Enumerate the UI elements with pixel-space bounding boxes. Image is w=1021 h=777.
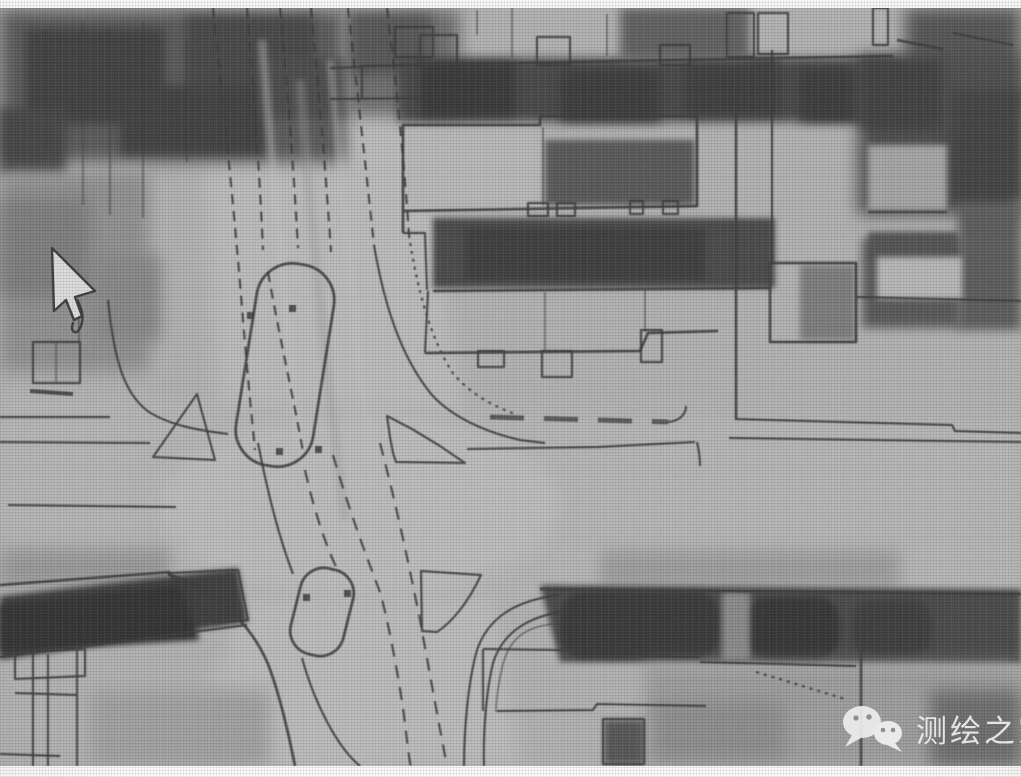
photo-border-top bbox=[0, 0, 1021, 8]
photo-border-bottom bbox=[0, 766, 1021, 777]
screen-photo: 测绘之家 bbox=[0, 0, 1021, 777]
photo-grain bbox=[0, 8, 1021, 766]
map-canvas[interactable] bbox=[0, 8, 1021, 766]
